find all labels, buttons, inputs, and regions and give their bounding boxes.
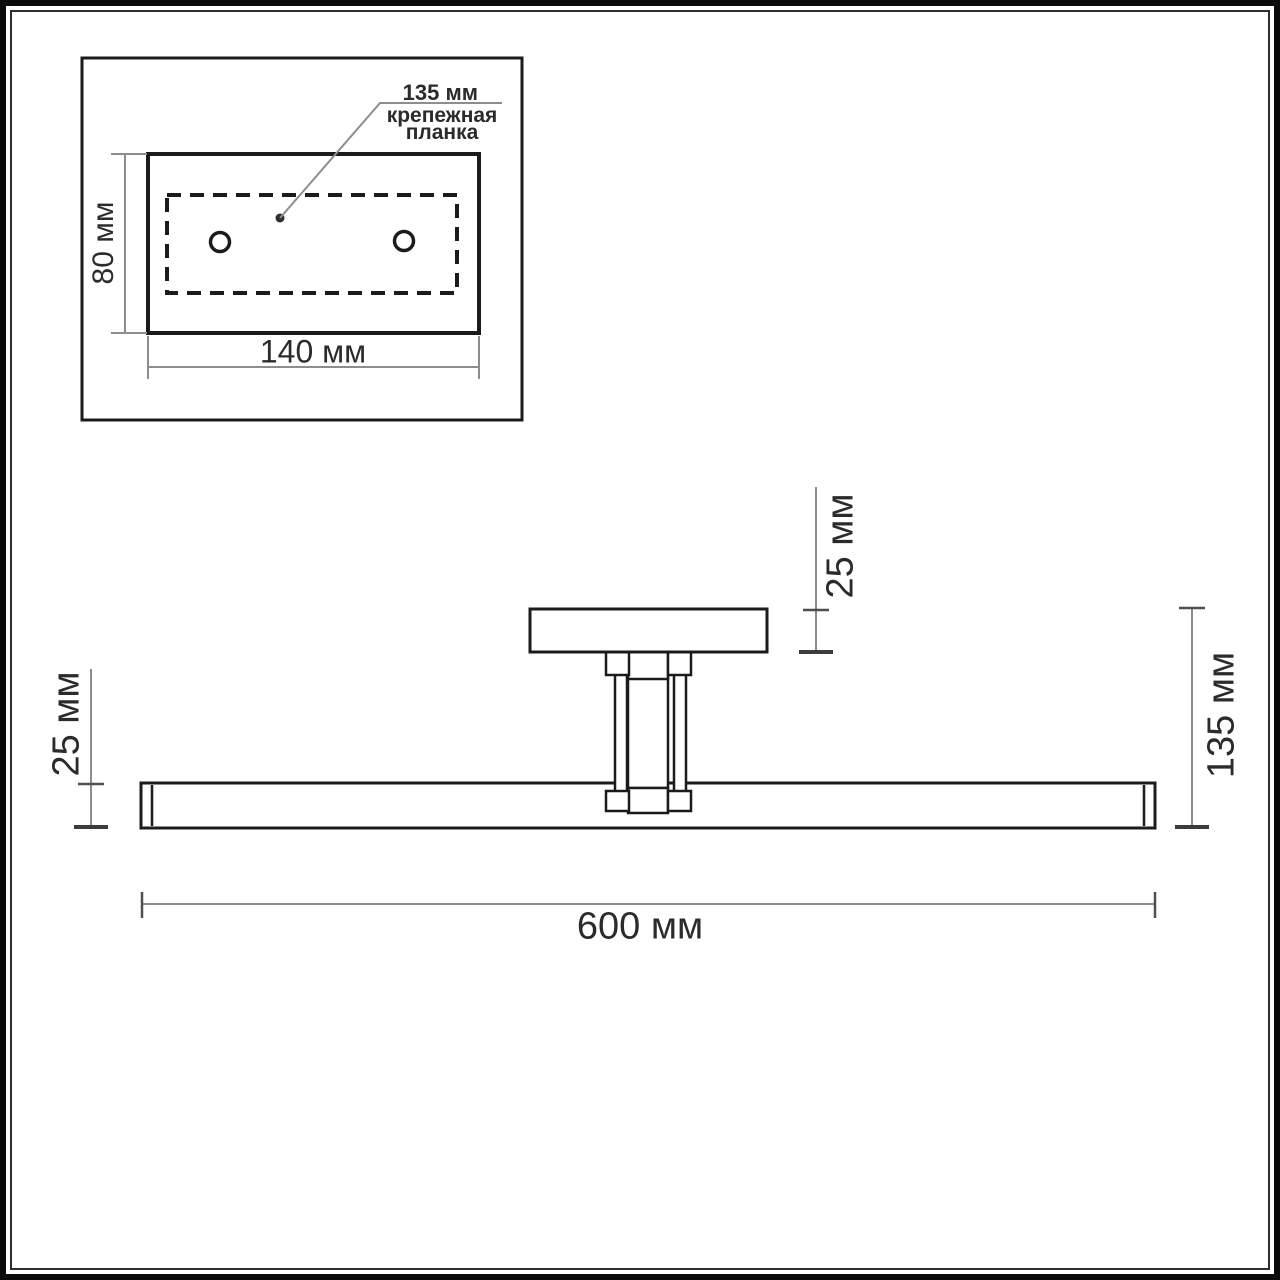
callout-part-name: крепежная планка xyxy=(387,107,498,141)
bracket-flange-top-left xyxy=(606,652,629,675)
support-rod-right xyxy=(674,672,686,792)
plate-thickness-label: 25 мм xyxy=(820,493,863,598)
screw-hole-left xyxy=(211,233,230,252)
callout-dimension-label: 135 мм xyxy=(403,80,478,106)
overall-height-label: 135 мм xyxy=(1201,652,1244,778)
bracket-block-bottom xyxy=(628,788,668,813)
bracket-flange-bottom-right xyxy=(668,791,691,811)
support-rod-left xyxy=(615,672,627,792)
screw-hole-right xyxy=(395,232,414,251)
wall-plate-side-view xyxy=(530,609,767,652)
inset-height-label: 80 мм xyxy=(87,202,121,285)
bracket-flange-bottom-left xyxy=(606,791,629,811)
overall-length-label: 600 мм xyxy=(577,906,703,949)
inset-width-label: 140 мм xyxy=(260,334,366,371)
support-column-center xyxy=(628,676,668,788)
bracket-flange-top-right xyxy=(668,652,691,675)
bracket-block-top xyxy=(628,652,668,679)
fixture-dimension-drawing xyxy=(0,0,1280,1280)
technical-drawing-page: 135 мм крепежная планка 80 мм 140 мм 25 … xyxy=(0,0,1280,1280)
bar-thickness-label: 25 мм xyxy=(46,671,89,776)
